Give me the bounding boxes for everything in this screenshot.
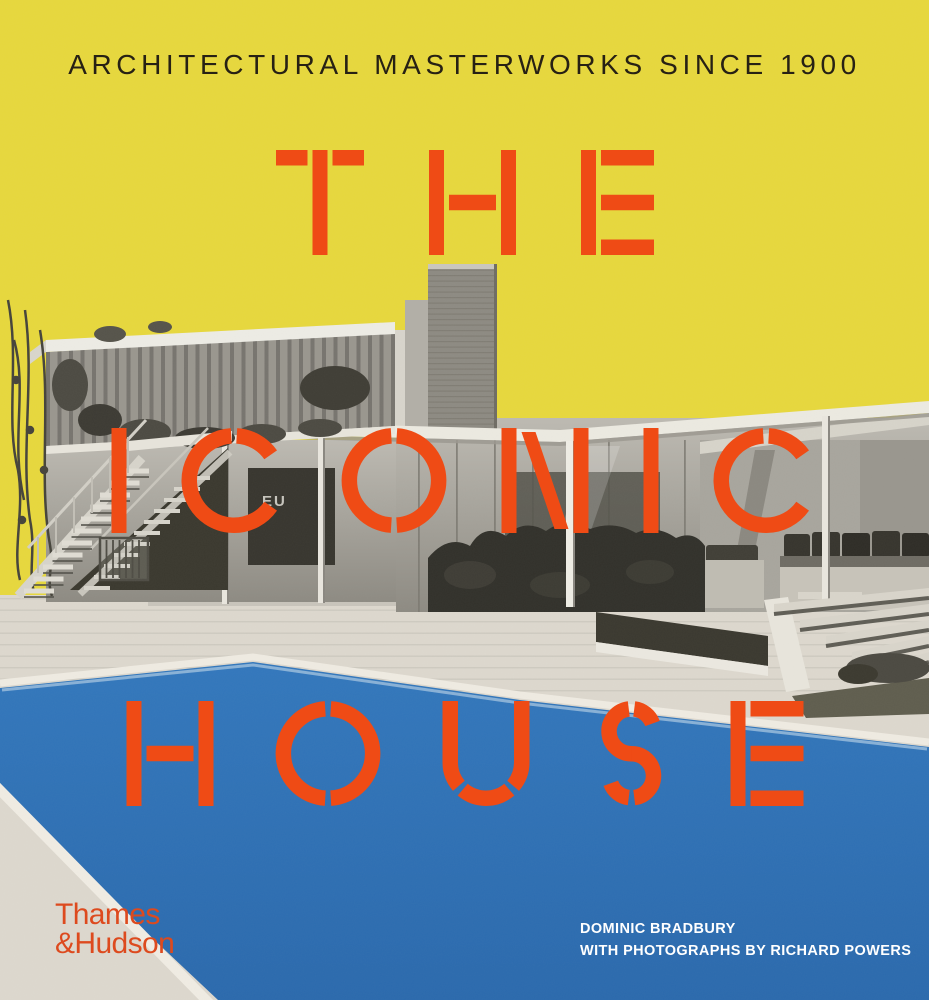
credit-photographer: WITH PHOTOGRAPHS BY RICHARD POWERS [580, 940, 911, 962]
credit-author: DOMINIC BRADBURY [580, 918, 911, 940]
publisher-logo: Thames &Hudson [55, 901, 174, 958]
title-letter [126, 701, 213, 806]
title-letter [442, 701, 529, 806]
title-letter [581, 150, 654, 255]
author-credits: DOMINIC BRADBURY WITH PHOTOGRAPHS BY RIC… [580, 918, 911, 963]
title-letter [713, 428, 818, 533]
title-line-3 [126, 701, 803, 806]
title-letter [643, 428, 658, 533]
title-letter [591, 701, 668, 806]
title-letter [501, 428, 588, 533]
title-letter [429, 150, 516, 255]
title-line-1 [276, 150, 654, 255]
title-letter [111, 428, 126, 533]
title-letter [276, 150, 364, 255]
publisher-line-2: &Hudson [55, 930, 174, 959]
title-letter [341, 428, 446, 533]
title-letter [730, 701, 803, 806]
tagline: ARCHITECTURAL MASTERWORKS SINCE 1900 [0, 49, 929, 81]
title-line-2 [111, 428, 818, 533]
title-letter [181, 428, 286, 533]
book-cover: EU [0, 0, 929, 1000]
publisher-line-1: Thames [55, 901, 174, 930]
title-letter [275, 701, 380, 806]
